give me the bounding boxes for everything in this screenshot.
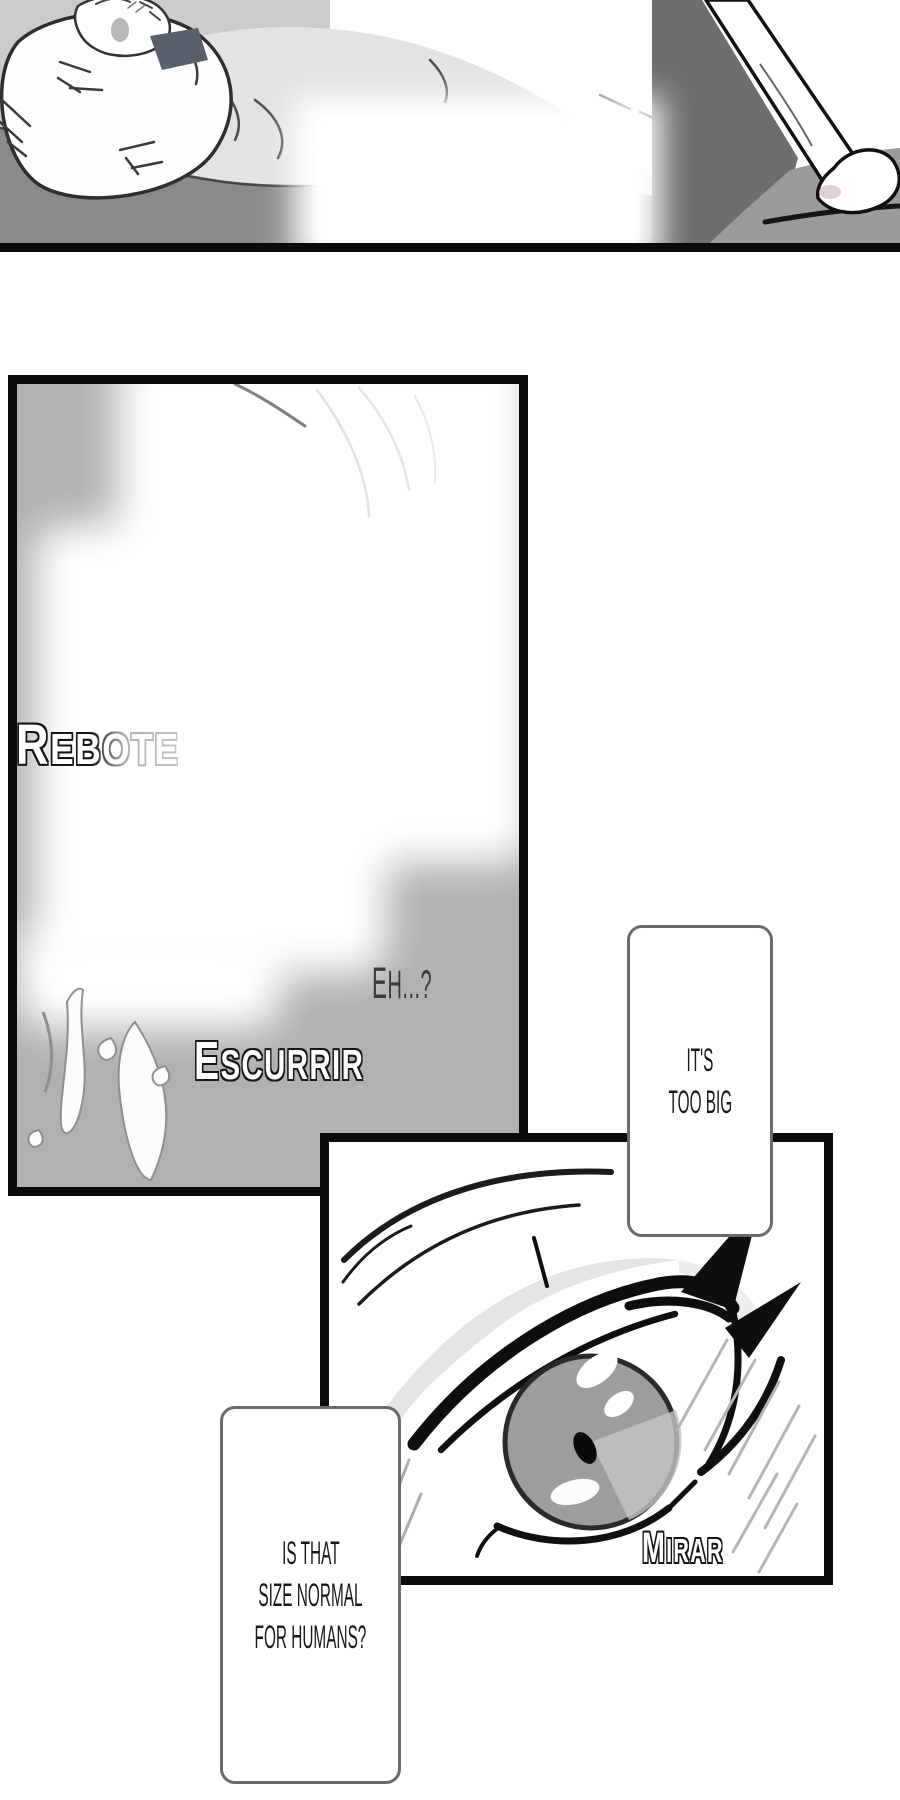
censor-blur-core: [318, 118, 638, 252]
panel-divider-bar: [0, 243, 900, 252]
drip-streak: [119, 1022, 167, 1180]
bubble-line: It's: [687, 1039, 714, 1081]
bubble-line: for humans?: [255, 1616, 367, 1658]
bubble-line: too big: [668, 1081, 732, 1123]
bubble-line: Is that: [282, 1532, 339, 1574]
sfx-escurrir: Escurrir: [194, 1030, 364, 1092]
iris-group: [505, 1345, 682, 1528]
drip-streak: [61, 989, 85, 1133]
drip-streak: [43, 1012, 52, 1092]
bubble-line: size normal: [258, 1574, 362, 1616]
speech-bubble-size-normal: Is that size normal for humans?: [220, 1406, 401, 1784]
droplet: [98, 1038, 116, 1060]
droplet: [28, 1130, 42, 1147]
sfx-mirar: Mirar: [642, 1524, 724, 1572]
top-panel: [0, 0, 900, 252]
heel-shading: [819, 185, 841, 199]
sfx-rebote: Rebote: [16, 712, 179, 777]
comic-page: Rebote Eh...? Escurrir Mirar It's too bi…: [0, 0, 900, 1800]
ear: [111, 18, 129, 42]
speech-bubble-its-too-big: It's too big: [627, 925, 773, 1237]
sfx-eh: Eh...?: [372, 958, 432, 1009]
